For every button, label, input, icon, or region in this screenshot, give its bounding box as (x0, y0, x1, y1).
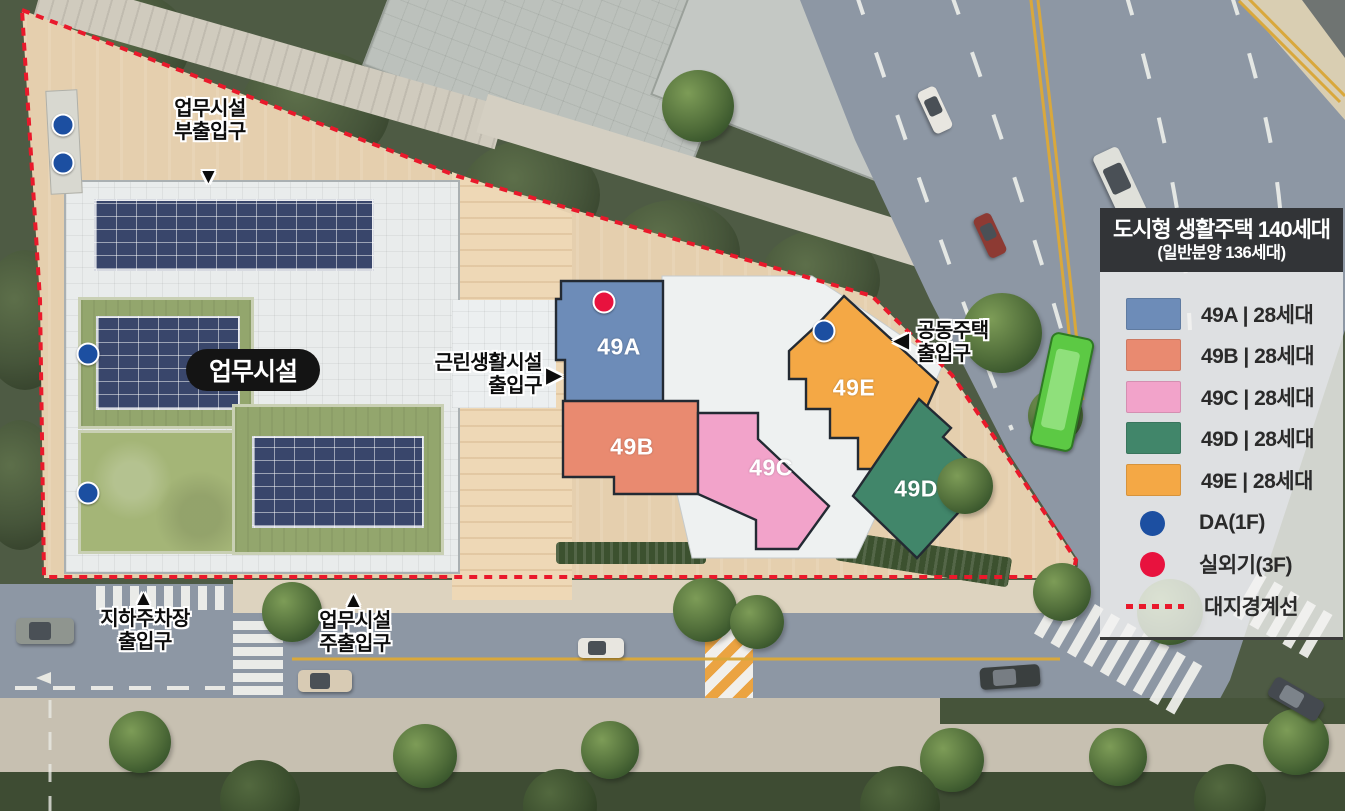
legend-item-label: DA(1F) (1199, 511, 1265, 535)
tree (1033, 563, 1091, 621)
legend-header: 도시형 생활주택 140세대 (일반분양 136세대) (1100, 208, 1343, 272)
truck (16, 618, 74, 644)
label-49c: 49C (749, 455, 793, 482)
legend-item-label: 대지경계선 (1204, 591, 1298, 621)
label-49d: 49D (894, 476, 938, 503)
da-marker (77, 482, 100, 505)
legend-item-49a: 49A | 28세대 (1126, 297, 1313, 331)
entrance-office-sub: 업무시설 부출입구 (150, 98, 270, 144)
entrance-line: 업무시설 (295, 610, 415, 633)
tree (673, 578, 737, 642)
tree (1089, 728, 1147, 786)
entrance-arrow-retail: ▶ (546, 365, 562, 386)
legend-item-label: 49B | 28세대 (1201, 340, 1314, 370)
entrance-arrow-parking: ▲ (133, 588, 154, 609)
entrance-line: 업무시설 (150, 98, 270, 121)
boundary-dash-icon (1126, 604, 1184, 609)
legend-item-label: 49C | 28세대 (1201, 382, 1314, 412)
entrance-line: 주출입구 (295, 633, 415, 656)
legend-title: 도시형 생활주택 140세대 (1100, 217, 1343, 243)
entrance-line: 지하주차장 (85, 608, 205, 631)
outdoor-unit-marker (593, 291, 616, 314)
legend-body: 49A | 28세대 49B | 28세대 49C | 28세대 49D | 2… (1100, 272, 1343, 640)
legend-item-49e: 49E | 28세대 (1126, 463, 1313, 497)
car (578, 638, 624, 658)
legend-item-label: 49A | 28세대 (1201, 299, 1313, 329)
site-plan: 49A 49B 49C 49D 49E 업무시설 업무시설 부출입구 ▼ 근린생… (0, 0, 1345, 811)
da-marker (813, 320, 836, 343)
tree (393, 724, 457, 788)
entrance-line: 출입구 (85, 631, 205, 654)
entrance-line: 근린생활시설 (400, 352, 542, 375)
tree (730, 595, 784, 649)
entrance-line: 출입구 (400, 375, 542, 398)
entrance-line: 부출입구 (150, 121, 270, 144)
legend-item-da: DA(1F) (1126, 506, 1265, 540)
swatch-49e (1126, 464, 1181, 496)
legend-item-boundary: 대지경계선 (1126, 589, 1298, 623)
label-49a: 49A (597, 334, 641, 361)
legend-item-49c: 49C | 28세대 (1126, 380, 1314, 414)
swatch-49c (1126, 381, 1181, 413)
office-label: 업무시설 (186, 349, 320, 391)
legend-panel: 도시형 생활주택 140세대 (일반분양 136세대) 49A | 28세대 4… (1100, 208, 1343, 640)
entrance-parking: 지하주차장 출입구 (85, 608, 205, 654)
tree (109, 711, 171, 773)
da-marker (52, 152, 75, 175)
car (979, 664, 1040, 690)
tree (1263, 709, 1329, 775)
da-marker (52, 114, 75, 137)
entrance-line: 출입구 (917, 343, 1027, 366)
crosswalk-left (96, 586, 224, 610)
entrance-office-main: 업무시설 주출입구 (295, 610, 415, 656)
label-49b: 49B (610, 434, 654, 461)
da-marker (77, 343, 100, 366)
outdoor-unit-dot-icon (1140, 552, 1165, 577)
tree (937, 458, 993, 514)
legend-item-outdoor-unit: 실외기(3F) (1126, 547, 1292, 581)
tree (581, 721, 639, 779)
entrance-retail: 근린생활시설 출입구 (400, 352, 542, 398)
label-49e: 49E (833, 375, 875, 402)
legend-item-label: 49D | 28세대 (1201, 423, 1314, 453)
entrance-arrow-housing: ◀ (893, 330, 909, 351)
swatch-49d (1126, 422, 1181, 454)
legend-item-49d: 49D | 28세대 (1126, 421, 1314, 455)
legend-item-label: 실외기(3F) (1199, 549, 1292, 579)
legend-item-label: 49E | 28세대 (1201, 465, 1313, 495)
entrance-housing: 공동주택 출입구 (917, 320, 1027, 366)
legend-item-49b: 49B | 28세대 (1126, 338, 1314, 372)
entrance-arrow-office-sub: ▼ (198, 166, 219, 187)
tree (662, 70, 734, 142)
swatch-49b (1126, 339, 1181, 371)
road-arrow (36, 672, 51, 684)
da-dot-icon (1140, 511, 1165, 536)
car (298, 670, 352, 692)
entrance-arrow-office-main: ▲ (343, 590, 364, 611)
swatch-49a (1126, 298, 1181, 330)
legend-subtitle: (일반분양 136세대) (1100, 244, 1343, 264)
entrance-line: 공동주택 (917, 320, 1027, 343)
